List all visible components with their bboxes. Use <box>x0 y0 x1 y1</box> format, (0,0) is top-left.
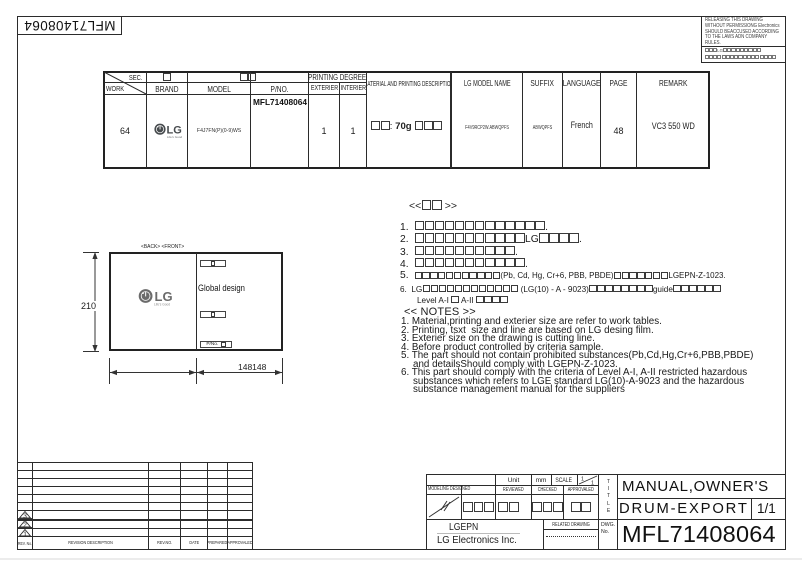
svg-text:1: 1 <box>581 477 584 483</box>
svg-text:3: 3 <box>23 512 27 519</box>
svg-text:2: 2 <box>23 522 27 528</box>
svg-text:Life's Good: Life's Good <box>154 303 170 307</box>
svg-text:Life's Good: Life's Good <box>167 135 182 139</box>
svg-text:1: 1 <box>591 481 594 486</box>
